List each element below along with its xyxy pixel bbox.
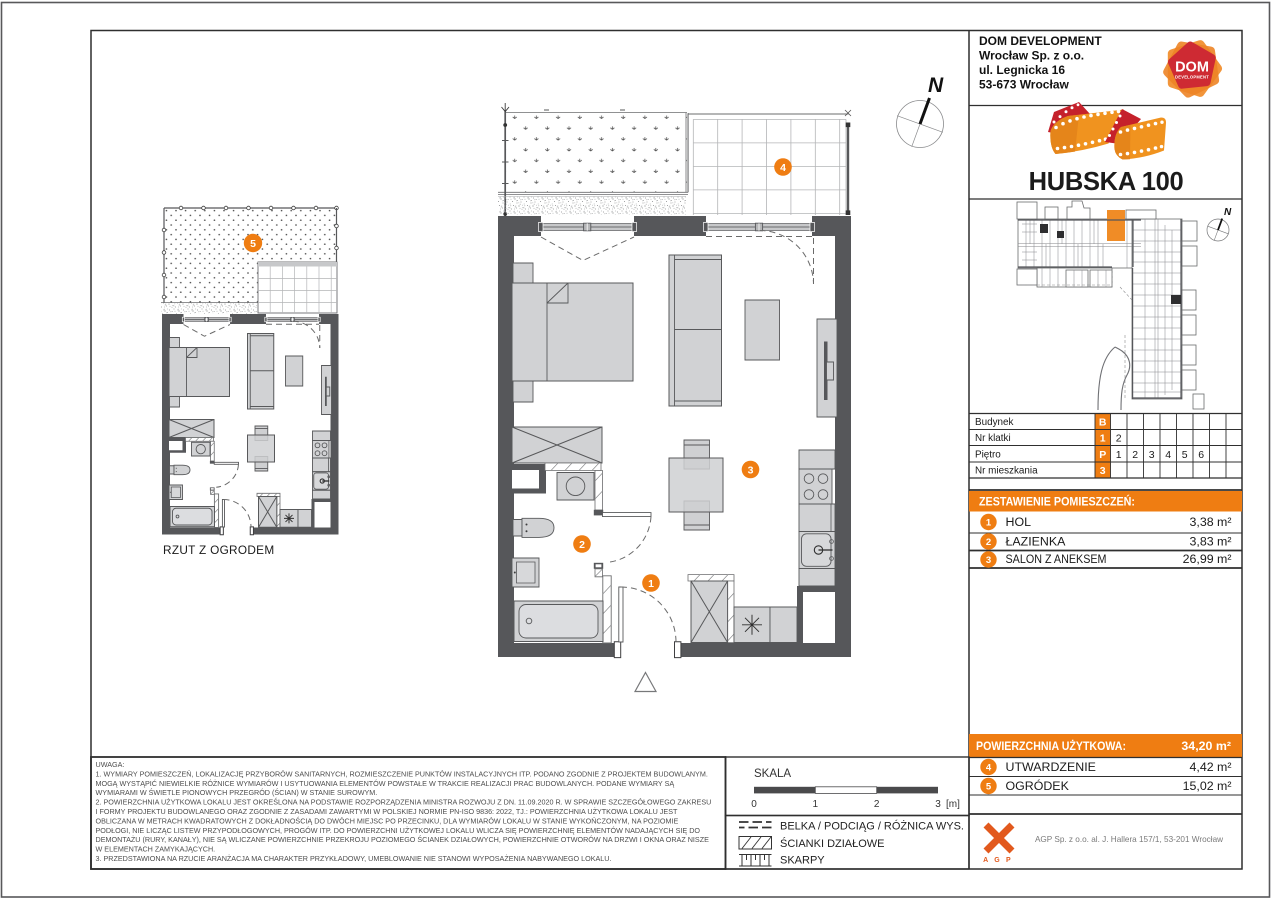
svg-text:WYMIARAMI W ŚWIETLE PIONOWYCH: WYMIARAMI W ŚWIETLE PIONOWYCH PRZEGRÓD (… [96, 788, 378, 797]
svg-text:ŁAZIENKA: ŁAZIENKA [1006, 535, 1067, 549]
svg-text:SKALA: SKALA [754, 768, 791, 780]
svg-text:B: B [1099, 417, 1107, 429]
svg-text:1: 1 [1100, 433, 1106, 445]
svg-text:DOM: DOM [1175, 60, 1209, 76]
svg-text:0: 0 [751, 799, 757, 810]
svg-text:Piętro: Piętro [975, 450, 1001, 461]
svg-text:4: 4 [1165, 449, 1171, 461]
svg-text:Nr klatki: Nr klatki [975, 433, 1011, 444]
svg-text:POWIERZCHNIA UŻYTKOWA:: POWIERZCHNIA UŻYTKOWA: [976, 738, 1126, 753]
svg-text:53-673 Wrocław: 53-673 Wrocław [979, 78, 1069, 92]
svg-text:1: 1 [648, 578, 654, 590]
svg-text:DEVELOPMENT: DEVELOPMENT [1175, 75, 1209, 80]
svg-text:5: 5 [1182, 449, 1188, 461]
svg-text:1: 1 [813, 799, 819, 810]
svg-text:A G P: A G P [983, 857, 1013, 864]
svg-text:3,38 m²: 3,38 m² [1189, 515, 1231, 529]
svg-text:4: 4 [780, 162, 786, 174]
svg-text:2: 2 [986, 537, 991, 548]
svg-text:3: 3 [748, 465, 754, 477]
svg-text:3: 3 [935, 799, 941, 810]
svg-text:3,83 m²: 3,83 m² [1189, 535, 1231, 549]
svg-text:DEMONTAŻU (RURY, KANAŁY), NIE: DEMONTAŻU (RURY, KANAŁY), NIE SĄ WLICZAN… [96, 835, 710, 844]
svg-text:Wrocław Sp. z o.o.: Wrocław Sp. z o.o. [979, 49, 1084, 63]
svg-text:RZUT Z OGRODEM: RZUT Z OGRODEM [163, 543, 274, 557]
svg-text:3. PRZEDSTAWIONA NA RZUCIE ARA: 3. PRZEDSTAWIONA NA RZUCIE ARANŻACJA MA … [96, 854, 612, 863]
svg-text:4,42 m²: 4,42 m² [1189, 760, 1231, 774]
svg-text:34,20 m²: 34,20 m² [1181, 739, 1231, 753]
svg-text:BELKA / PODCIĄG / RÓŻNICA WYS.: BELKA / PODCIĄG / RÓŻNICA WYS. [780, 820, 964, 833]
svg-text:PODŁOGI, NIE LICZĄC LISTEW PRZ: PODŁOGI, NIE LICZĄC LISTEW PRZYPODŁOGOWY… [96, 826, 701, 835]
svg-text:ZESTAWIENIE POMIESZCZEŃ:: ZESTAWIENIE POMIESZCZEŃ: [979, 494, 1135, 509]
svg-text:1: 1 [986, 518, 992, 529]
svg-text:OBLICZANA W METRACH KWADRATOWY: OBLICZANA W METRACH KWADRATOWYCH Z DOKŁA… [96, 816, 679, 825]
svg-text:N: N [1224, 207, 1232, 218]
svg-text:2: 2 [1116, 433, 1122, 445]
svg-text:2: 2 [579, 539, 585, 551]
svg-text:1: 1 [1116, 449, 1122, 461]
svg-text:2. POWIERZCHNIA UŻYTKOWA LOKAL: 2. POWIERZCHNIA UŻYTKOWA LOKALU JEST OKR… [96, 798, 712, 807]
svg-text:ul. Legnicka 16: ul. Legnicka 16 [979, 63, 1065, 77]
svg-text:1. WYMIARY POMIESZCZEŃ, LOKALI: 1. WYMIARY POMIESZCZEŃ, LOKALIZACJĘ PRZY… [96, 769, 708, 778]
svg-text:3: 3 [986, 555, 991, 566]
svg-text:6: 6 [1198, 449, 1204, 461]
svg-text:15,02 m²: 15,02 m² [1183, 779, 1232, 793]
svg-text:UWAGA:: UWAGA: [96, 760, 125, 769]
svg-text:SALON Z ANEKSEM: SALON Z ANEKSEM [1006, 552, 1107, 566]
svg-text:5: 5 [986, 782, 992, 793]
svg-text:26,99 m²: 26,99 m² [1183, 552, 1232, 566]
svg-text:W ELEMENTACH ZAMYKAJĄCYCH.: W ELEMENTACH ZAMYKAJĄCYCH. [96, 845, 216, 854]
svg-text:AGP Sp. z o.o. al. J. Hallera: AGP Sp. z o.o. al. J. Hallera 157/1, 53-… [1035, 835, 1223, 844]
svg-text:4: 4 [986, 763, 992, 774]
svg-text:SKARPY: SKARPY [780, 855, 825, 867]
svg-text:ŚCIANKI DZIAŁOWE: ŚCIANKI DZIAŁOWE [780, 837, 885, 850]
svg-text:HOL: HOL [1006, 515, 1032, 529]
svg-text:5: 5 [250, 238, 256, 250]
svg-text:HUBSKA 100: HUBSKA 100 [1029, 168, 1184, 196]
svg-text:2: 2 [874, 799, 880, 810]
svg-text:P: P [1099, 449, 1106, 461]
svg-text:Nr mieszkania: Nr mieszkania [975, 466, 1038, 477]
svg-text:I FORMY PROJEKTU BUDOWLANEGO O: I FORMY PROJEKTU BUDOWLANEGO ORAZ ZGODNI… [96, 807, 678, 816]
svg-text:3: 3 [1149, 449, 1155, 461]
svg-text:OGRÓDEK: OGRÓDEK [1006, 778, 1070, 793]
svg-text:2: 2 [1132, 449, 1138, 461]
svg-text:DOM DEVELOPMENT: DOM DEVELOPMENT [979, 34, 1102, 48]
svg-text:[m]: [m] [946, 799, 960, 810]
svg-text:MOGĄ WYSTĄPIĆ NIEWIELKIE RÓŻNI: MOGĄ WYSTĄPIĆ NIEWIELKIE RÓŻNICE WYMIARÓ… [96, 779, 675, 788]
svg-text:UTWARDZENIE: UTWARDZENIE [1006, 760, 1096, 774]
svg-text:Budynek: Budynek [975, 417, 1013, 428]
svg-text:N: N [928, 74, 944, 97]
svg-text:3: 3 [1100, 465, 1106, 477]
